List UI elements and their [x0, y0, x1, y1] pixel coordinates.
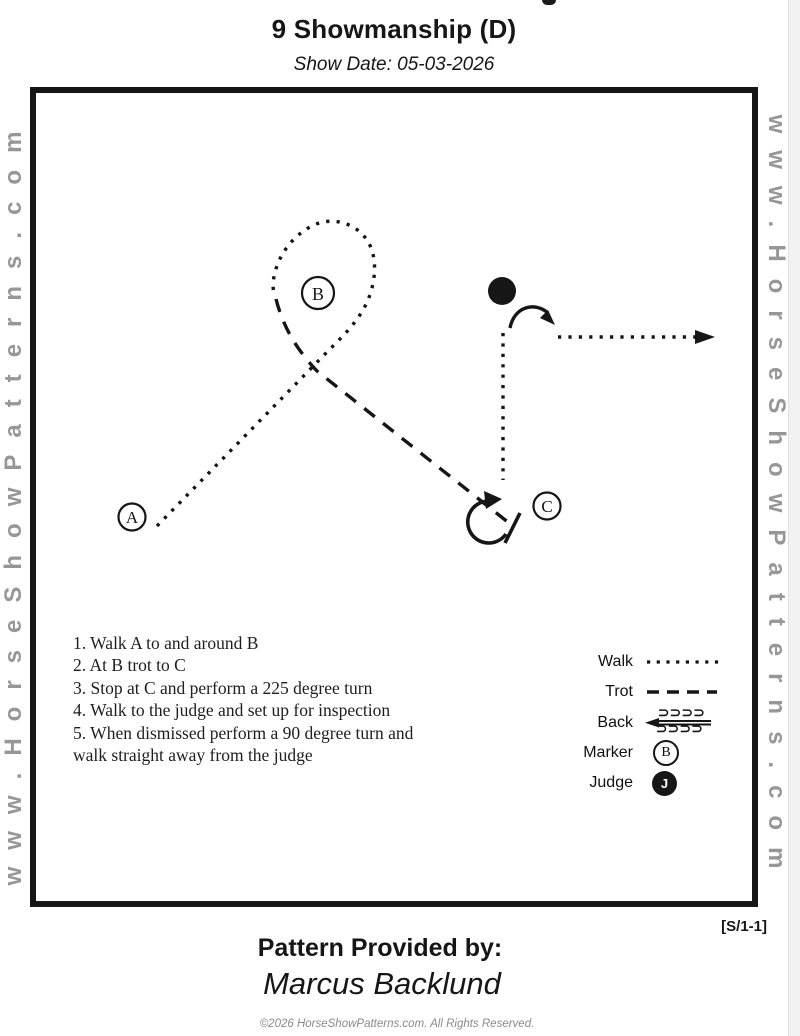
legend: Walk Trot Back ⊃⊃⊃⊃	[563, 647, 725, 798]
marker-a-label: A	[126, 508, 139, 527]
judge-marker-label: J	[498, 284, 506, 301]
instruction-line: walk straight away from the judge	[73, 744, 493, 766]
pattern-sheet: 9 Showmanship (D) Show Date: 05-03-2026 …	[0, 0, 800, 1036]
marker-symbol-icon: B	[653, 740, 679, 766]
legend-trot-label: Trot	[563, 683, 645, 701]
legend-row-walk: Walk	[563, 647, 725, 677]
legend-marker-label: Marker	[563, 744, 645, 762]
instruction-list: 1. Walk A to and around B 2. At B trot t…	[73, 632, 493, 766]
instruction-line: 4. Walk to the judge and set up for insp…	[73, 699, 493, 721]
page-title: 9 Showmanship (D)	[0, 14, 788, 45]
provided-by-label: Pattern Provided by:	[0, 934, 760, 963]
judge-symbol-icon: J	[652, 771, 677, 796]
legend-judge-label: Judge	[563, 774, 645, 792]
walk-path	[157, 221, 375, 526]
legend-row-trot: Trot	[563, 677, 725, 707]
legend-row-marker: Marker B	[563, 738, 725, 768]
instruction-line: 3. Stop at C and perform a 225 degree tu…	[73, 677, 493, 699]
turn-90-arrowhead	[540, 310, 555, 325]
legend-row-back: Back ⊃⊃⊃⊃ ⊃⊃⊃⊃	[563, 708, 725, 738]
stop-slash	[505, 513, 520, 543]
legend-walk-label: Walk	[563, 653, 645, 671]
turn-225-arrowhead	[484, 491, 502, 509]
scrollbar-track[interactable]	[788, 0, 800, 1036]
back-hoofprints-bottom: ⊃⊃⊃⊃	[656, 724, 703, 734]
watermark-right: www.HorseShowPatterns.com	[762, 115, 790, 886]
instruction-line: 1. Walk A to and around B	[73, 632, 493, 654]
back-icon: ⊃⊃⊃⊃ ⊃⊃⊃⊃	[645, 709, 725, 736]
watermark-left: www.HorseShowPatterns.com	[0, 115, 28, 886]
back-hoofprints-top: ⊃⊃⊃⊃	[658, 708, 705, 718]
instruction-line: 2. At B trot to C	[73, 654, 493, 676]
trot-line-icon	[645, 688, 725, 696]
legend-row-judge: Judge J	[563, 768, 725, 798]
copyright-footer: ©2026 HorseShowPatterns.com. All Rights …	[0, 1018, 794, 1030]
marker-c-label: C	[541, 497, 552, 516]
pattern-code: [S/1-1]	[721, 918, 767, 935]
provider-name: Marcus Backlund	[0, 966, 764, 1002]
legend-back-label: Back	[563, 714, 645, 732]
instruction-line: 5. When dismissed perform a 90 degree tu…	[73, 722, 493, 744]
walk-away-arrowhead	[695, 330, 715, 344]
trot-path	[276, 299, 509, 523]
show-date: Show Date: 05-03-2026	[0, 54, 788, 76]
walk-line-icon	[645, 658, 725, 666]
cropped-text-artifact	[542, 0, 556, 5]
marker-b-label: B	[312, 284, 324, 304]
